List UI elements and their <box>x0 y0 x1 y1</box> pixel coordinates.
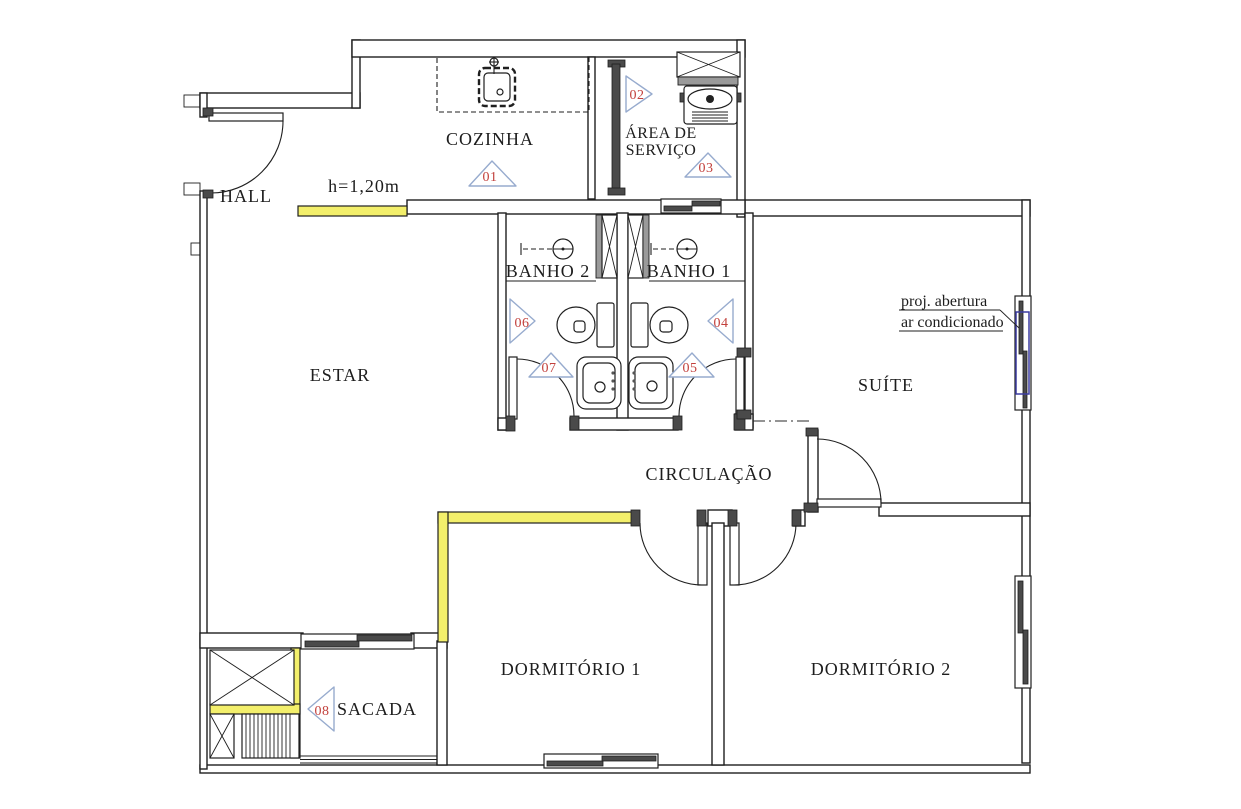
elevator-shaft <box>210 650 294 705</box>
duct-shaft <box>210 714 234 758</box>
annotation-half-wall-height: h=1,20m <box>328 176 400 196</box>
shower-banho1 <box>651 239 697 259</box>
window-dormitorio1 <box>544 754 658 768</box>
exterior-wall-stub <box>191 243 200 255</box>
door-cap <box>608 188 625 195</box>
kitchen-sink-basin <box>484 73 510 101</box>
door-swing-arc <box>817 439 881 503</box>
door-dormitorio2 <box>730 523 796 585</box>
window-dormitorio2 <box>1015 576 1031 688</box>
half-height-wall <box>298 206 407 216</box>
shower-banho2 <box>521 239 573 259</box>
tank-drain <box>706 95 714 103</box>
window-sash <box>1023 630 1028 684</box>
marker-01: 01 <box>469 161 516 186</box>
door-suite <box>817 439 881 507</box>
room-label-dormitorio2: DORMITÓRIO 2 <box>811 658 952 679</box>
room-label-hall: HALL <box>220 186 272 206</box>
window-servico-banho1 <box>661 199 721 213</box>
toilet-seat-hole <box>660 321 672 332</box>
window-sash <box>602 756 656 761</box>
marker-number: 02 <box>630 88 645 103</box>
wall-segment <box>200 633 303 648</box>
window-sash <box>1018 581 1023 633</box>
balcony-railing <box>300 756 437 763</box>
room-label-area-servico-line1: ÁREA DE <box>625 123 697 142</box>
window-sash <box>1023 351 1027 408</box>
marker-number: 08 <box>315 704 330 719</box>
marker-05: 05 <box>669 353 714 377</box>
door-leaf <box>817 499 881 507</box>
door-leaf <box>698 523 707 585</box>
room-label-banho2: BANHO 2 <box>506 261 591 281</box>
room-label-dormitorio1: DORMITÓRIO 1 <box>501 658 642 679</box>
window-sash <box>1019 301 1023 354</box>
door-swing-arc <box>640 523 702 585</box>
door-leaf <box>209 113 283 121</box>
annotation-ac-line1: proj. abertura <box>901 293 987 310</box>
sliding-door-estar-sacada <box>301 634 414 649</box>
room-label-banho1: BANHO 1 <box>647 261 732 281</box>
marker-06: 06 <box>510 299 535 343</box>
wall-segment <box>200 191 207 769</box>
toilet-banho2 <box>557 303 614 347</box>
door-sash <box>357 635 412 641</box>
wall-segment <box>712 523 724 765</box>
door-swing-arc <box>734 523 796 585</box>
wall-segment <box>879 503 1030 516</box>
shaft-cap <box>678 77 738 85</box>
stair-box <box>242 714 299 758</box>
marker-08: 08 <box>308 687 334 731</box>
room-label-sacada: SACADA <box>337 699 417 719</box>
door-entrance <box>209 113 283 193</box>
wall-segment <box>200 93 360 108</box>
wall-segment <box>498 213 506 430</box>
marker-number: 01 <box>483 170 498 185</box>
marker-number: 07 <box>542 361 557 376</box>
annotation-ac-line2: ar condicionado <box>901 314 1004 331</box>
service-shaft <box>677 52 740 85</box>
highlighted-wall <box>438 512 634 523</box>
marker-02: 02 <box>626 76 652 112</box>
toilet-banho1 <box>631 303 688 347</box>
door-leaf <box>509 357 517 419</box>
sliding-door-cozinha-servico <box>608 60 625 195</box>
marker-04: 04 <box>708 299 733 343</box>
sink-drain <box>595 382 605 392</box>
exterior-wall-stub <box>184 95 200 107</box>
toilet-seat-hole <box>574 321 585 332</box>
window-sash <box>664 206 692 211</box>
laundry-tank <box>680 86 741 124</box>
door-panel <box>612 64 620 191</box>
highlighted-wall <box>438 512 448 642</box>
marker-number: 04 <box>714 316 729 331</box>
marker-number: 06 <box>515 316 530 331</box>
window-sash <box>547 761 603 766</box>
room-label-estar: ESTAR <box>310 365 371 385</box>
floor-plan: 01 02 03 04 05 06 07 08 HALL COZINHA ÁRE… <box>0 0 1241 809</box>
kitchen-sink-drain <box>497 89 503 95</box>
wall-segment <box>570 418 678 430</box>
room-label-suite: SUÍTE <box>858 374 914 395</box>
kitchen-counter <box>437 57 589 112</box>
wall-segment <box>745 200 1030 216</box>
stair-hatch <box>242 714 299 758</box>
sink-banho1 <box>629 357 673 409</box>
window-sash <box>692 201 720 206</box>
wall-segment <box>588 57 595 199</box>
toilet-cistern <box>631 303 648 347</box>
marker-number: 05 <box>683 361 698 376</box>
door-swing-arc <box>211 121 283 193</box>
toilet-cistern <box>597 303 614 347</box>
sink-banho2 <box>577 357 621 409</box>
room-label-area-servico-line2: SERVIÇO <box>626 142 697 159</box>
marker-number: 03 <box>699 161 714 176</box>
door-dormitorio1 <box>640 523 707 585</box>
floor-plan-drawing: 01 02 03 04 05 06 07 08 HALL COZINHA ÁRE… <box>0 0 1241 809</box>
sink-drain <box>647 381 657 391</box>
window-suite-ac <box>1015 296 1031 410</box>
exterior-wall-stub <box>184 183 200 195</box>
marker-07: 07 <box>529 353 573 377</box>
door-sash <box>305 641 359 647</box>
wall-segment <box>437 641 447 765</box>
room-label-cozinha: COZINHA <box>446 129 534 149</box>
wall-segment <box>745 213 753 428</box>
door-leaf <box>730 523 739 585</box>
room-label-circulacao: CIRCULAÇÃO <box>645 463 772 484</box>
